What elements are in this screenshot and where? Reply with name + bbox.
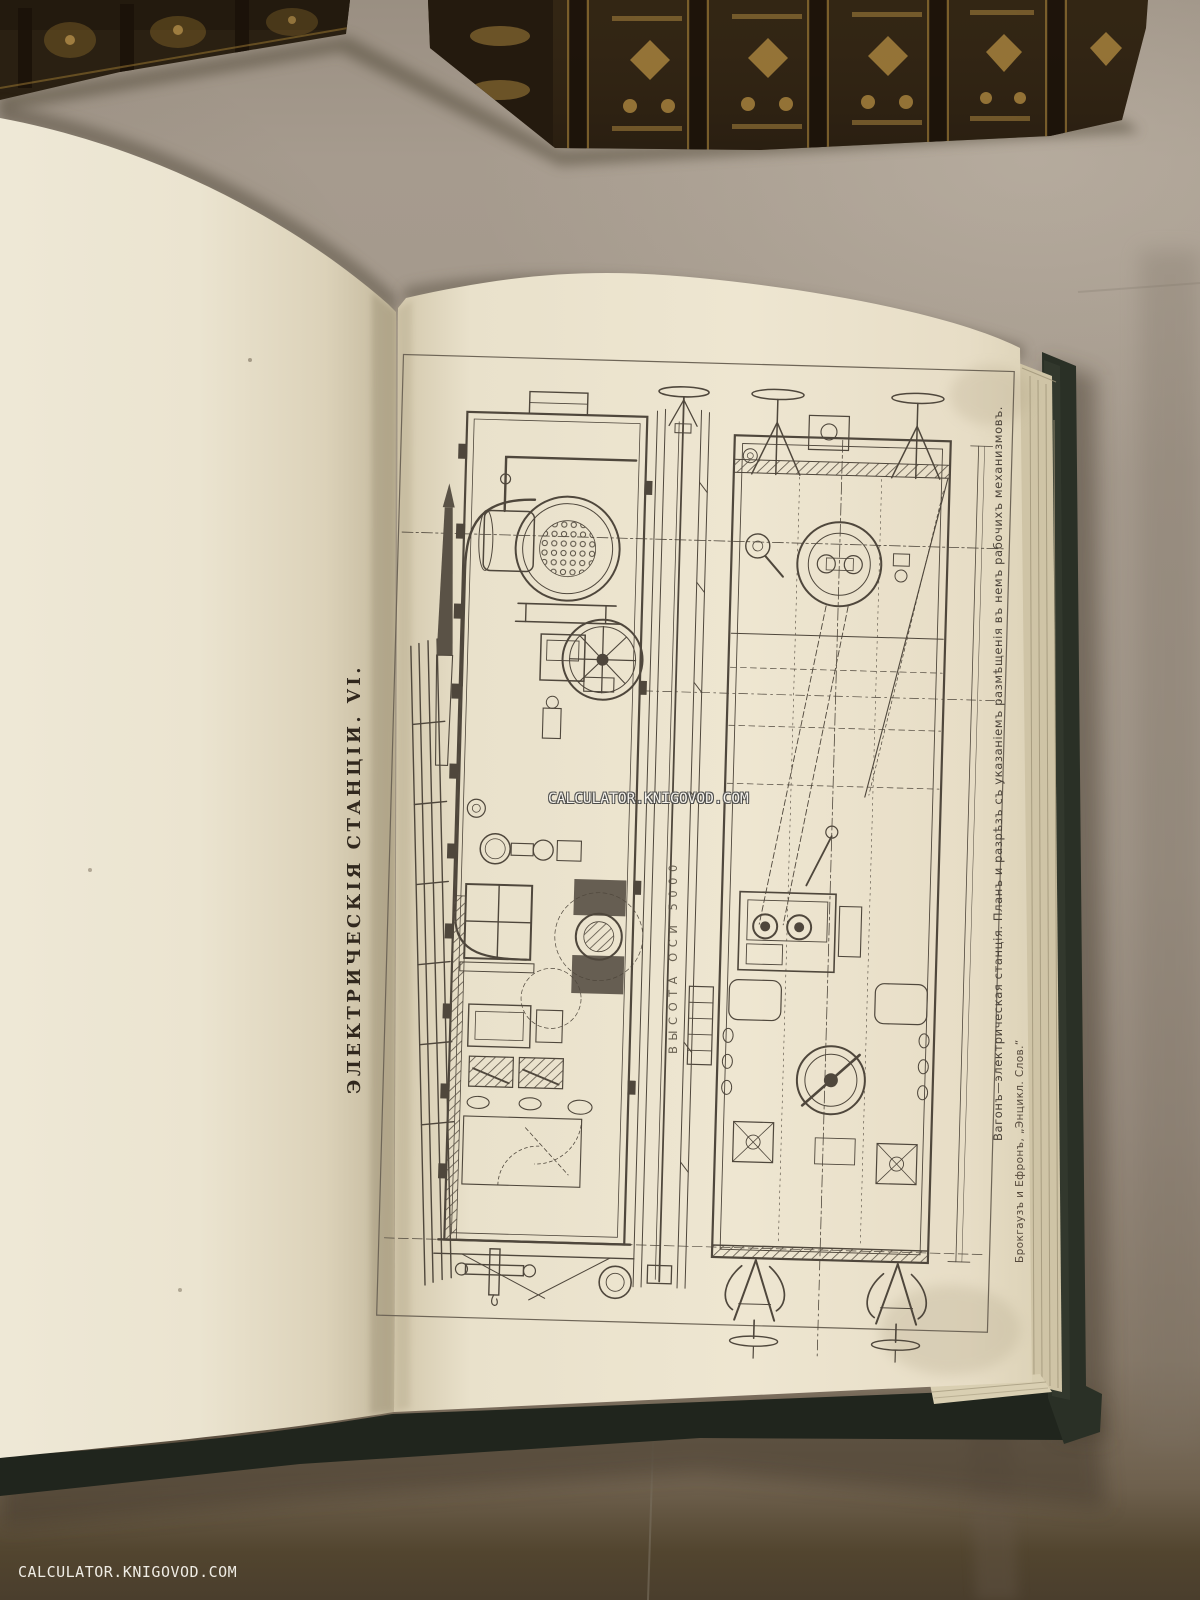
axle-height-dimension-label: ВЫСОТА ОСИ 5000 [666, 792, 681, 1054]
watermark-bottom-left: CALCULATOR.KNIGOVOD.COM [18, 1563, 237, 1581]
left-page [0, 118, 396, 1458]
watermark-center: CALCULATOR.KNIGOVOD.COM [548, 791, 749, 807]
book-spine-top-right [425, 0, 1153, 155]
photo-scene: ЭЛЕКТРИЧЕСКІЯ СТАНЦІИ. VI. ВЫСОТА ОСИ 50… [0, 0, 1200, 1600]
plate-title: ЭЛЕКТРИЧЕСКІЯ СТАНЦІИ. VI. [344, 614, 370, 1094]
plate-credit: Брокгаузъ и Ефронъ, „Энцикл. Слов.“ [1014, 1065, 1028, 1263]
plate-caption: Вагонъ—электрическая станція. Планъ и ра… [991, 515, 1007, 1141]
